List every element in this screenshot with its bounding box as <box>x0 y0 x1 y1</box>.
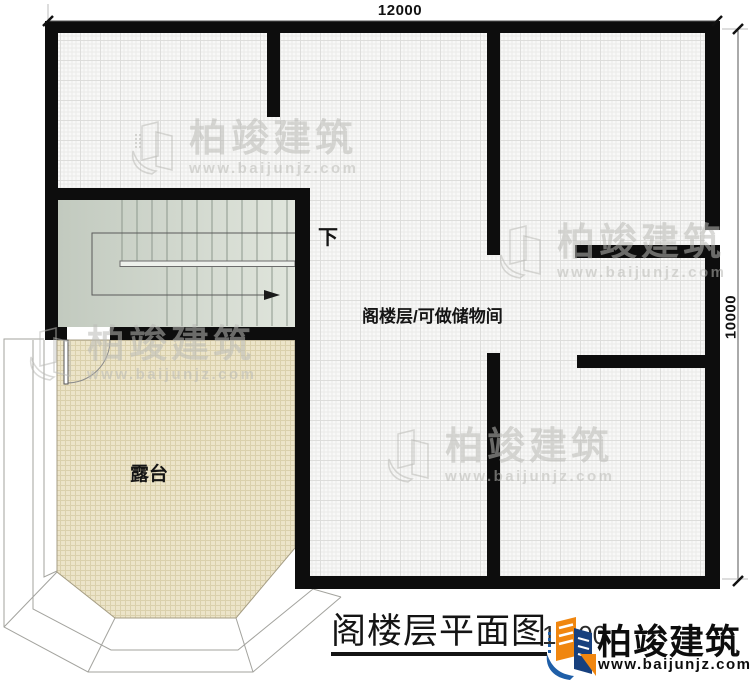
wall-terrace-top <box>110 327 310 340</box>
plan-title: 阁楼层平面图 <box>331 603 547 654</box>
wall-left <box>45 21 58 327</box>
floor-plan: 柏竣建筑 www.baijunjz.com 柏竣建筑 www.baijunjz.… <box>0 0 750 687</box>
wall-top <box>45 21 720 33</box>
wall-mid-upper <box>487 33 500 255</box>
door-leaf <box>64 340 68 384</box>
brand-logo-icon <box>544 614 600 682</box>
wall-terrace-left-stub <box>45 327 67 340</box>
attic-room-label: 阁楼层/可做储物间 <box>362 302 503 327</box>
wall-right-upper <box>705 21 720 230</box>
room-floor-top <box>58 33 705 200</box>
wall-stair-right <box>295 188 310 589</box>
stair-handrail <box>120 261 295 267</box>
wall-stub-top-left <box>267 33 280 117</box>
stairs-down-label: 下 <box>318 221 338 250</box>
brand-url: www.baijunjz.com <box>598 656 750 673</box>
title-underline <box>331 652 547 656</box>
wall-stub-right-1 <box>575 245 710 258</box>
floor-plan-drawing <box>0 0 750 687</box>
terrace-floor <box>57 340 295 618</box>
brand-logo: 柏竣建筑 www.baijunjz.com <box>544 612 750 682</box>
wall-right-lower <box>705 245 720 589</box>
dimension-height-label: 10000 <box>723 295 740 339</box>
wall-mid-lower <box>487 353 500 576</box>
staircase <box>58 200 295 327</box>
wall-above-stairs <box>45 188 310 200</box>
wall-stub-right-2 <box>577 355 710 368</box>
dimension-width-label: 12000 <box>360 2 440 19</box>
terrace-label: 露台 <box>130 459 168 486</box>
wall-bottom <box>295 576 720 589</box>
